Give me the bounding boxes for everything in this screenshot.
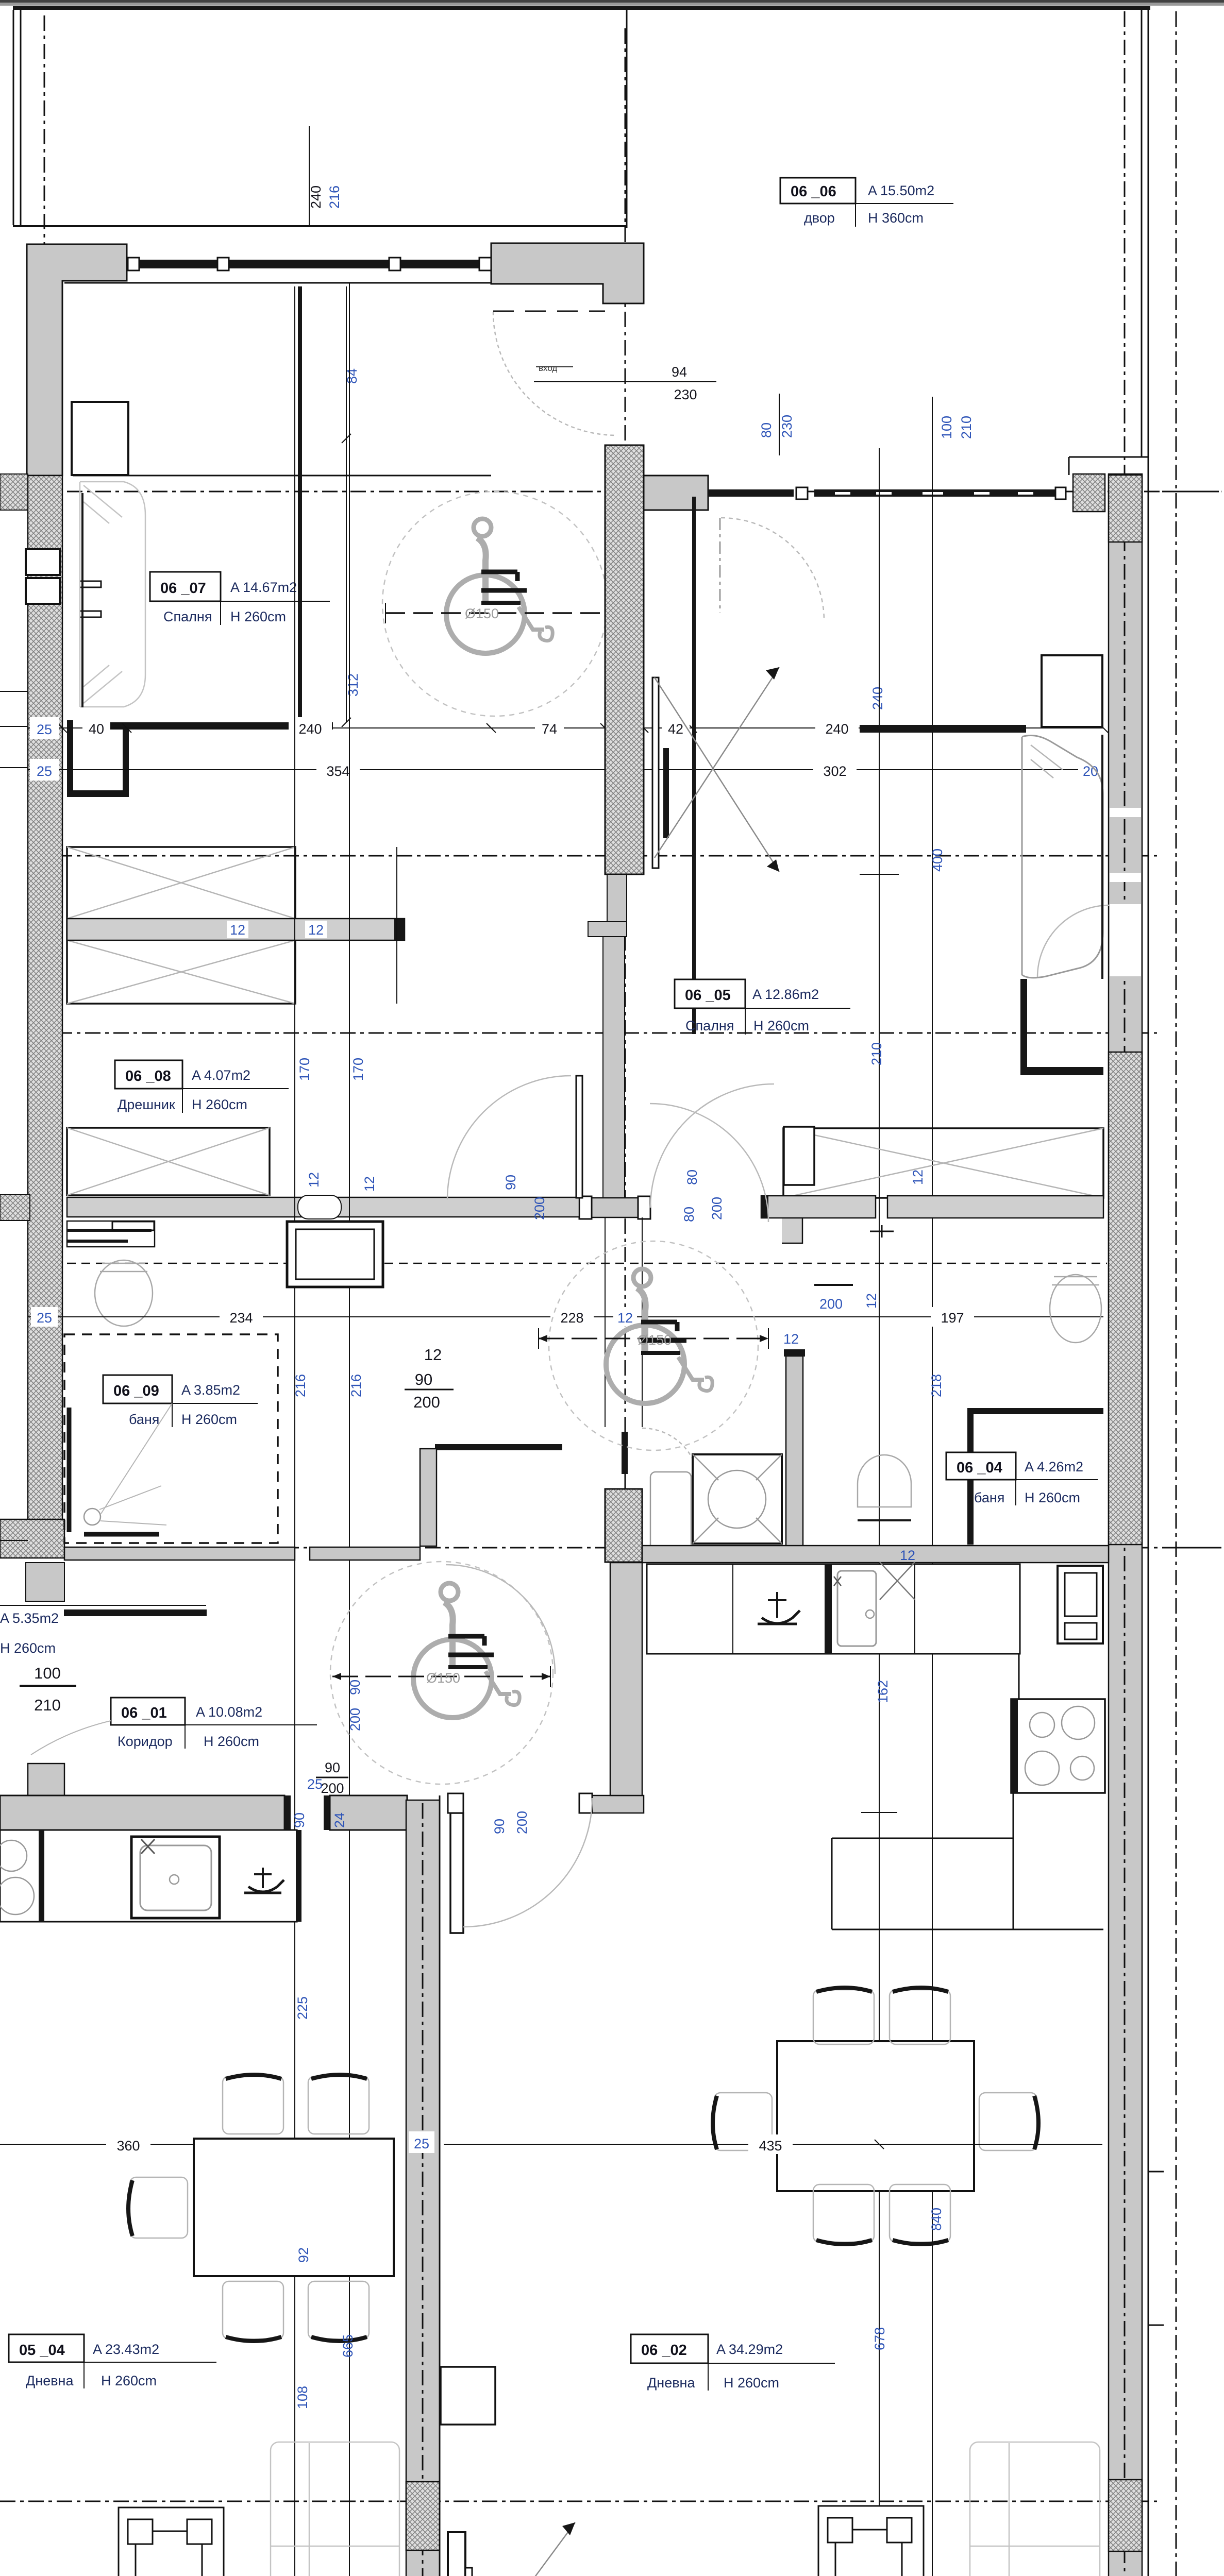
svg-text:42: 42 — [668, 721, 683, 737]
svg-text:12: 12 — [783, 1331, 799, 1347]
svg-text:200: 200 — [514, 1811, 530, 1834]
svg-text:92: 92 — [296, 2247, 311, 2263]
svg-text:240: 240 — [825, 721, 848, 737]
svg-text:170: 170 — [350, 1058, 366, 1081]
svg-text:H 260cm: H 260cm — [204, 1734, 259, 1749]
svg-text:Ø150: Ø150 — [426, 1670, 460, 1686]
svg-text:90: 90 — [415, 1370, 432, 1388]
svg-text:H 360cm: H 360cm — [868, 210, 924, 226]
svg-text:197: 197 — [941, 1310, 964, 1326]
svg-text:A 23.43m2: A 23.43m2 — [93, 2342, 159, 2357]
svg-text:12: 12 — [362, 1176, 377, 1192]
svg-text:A 14.67m2: A 14.67m2 — [230, 580, 297, 595]
svg-text:240: 240 — [870, 687, 885, 710]
svg-text:A 5.35m2: A 5.35m2 — [0, 1611, 59, 1626]
svg-text:234: 234 — [229, 1310, 253, 1326]
svg-text:A 15.50m2: A 15.50m2 — [868, 183, 934, 198]
svg-text:A 10.08m2: A 10.08m2 — [196, 1704, 262, 1720]
svg-text:H 260cm: H 260cm — [181, 1412, 237, 1427]
svg-text:90: 90 — [292, 1812, 307, 1828]
svg-text:216: 216 — [327, 185, 342, 209]
svg-text:Дневна: Дневна — [647, 2375, 695, 2391]
svg-text:360: 360 — [116, 2138, 140, 2154]
svg-text:06 _09: 06 _09 — [113, 1383, 159, 1399]
svg-text:12: 12 — [306, 1172, 322, 1188]
svg-text:200: 200 — [532, 1197, 547, 1220]
svg-text:A 34.29m2: A 34.29m2 — [716, 2342, 783, 2357]
svg-text:12: 12 — [617, 1310, 633, 1326]
svg-text:230: 230 — [779, 415, 795, 438]
svg-text:Дневна: Дневна — [26, 2373, 74, 2388]
svg-text:A 4.26m2: A 4.26m2 — [1025, 1459, 1083, 1475]
svg-text:210: 210 — [959, 416, 974, 439]
svg-text:216: 216 — [293, 1374, 308, 1397]
svg-text:A 3.85m2: A 3.85m2 — [181, 1382, 240, 1398]
svg-text:210: 210 — [34, 1696, 61, 1714]
svg-text:H 260cm: H 260cm — [101, 2373, 157, 2388]
svg-text:678: 678 — [872, 2327, 887, 2350]
svg-text:80: 80 — [681, 1207, 697, 1222]
svg-text:230: 230 — [674, 387, 697, 402]
svg-text:312: 312 — [345, 673, 361, 697]
svg-text:25: 25 — [37, 1310, 52, 1326]
svg-text:90: 90 — [492, 1819, 507, 1834]
svg-text:06 _01: 06 _01 — [121, 1705, 167, 1721]
svg-text:25: 25 — [37, 722, 52, 737]
svg-text:218: 218 — [929, 1374, 944, 1397]
svg-text:A 12.86m2: A 12.86m2 — [752, 987, 819, 1002]
svg-text:Коридор: Коридор — [118, 1734, 173, 1749]
svg-text:100: 100 — [34, 1664, 61, 1682]
svg-text:225: 225 — [295, 1996, 310, 2020]
svg-text:90: 90 — [347, 1680, 363, 1695]
svg-text:06 _07: 06 _07 — [160, 580, 206, 597]
svg-text:170: 170 — [297, 1058, 312, 1081]
svg-text:240: 240 — [308, 185, 324, 209]
svg-text:354: 354 — [326, 764, 349, 779]
svg-text:двор: двор — [804, 210, 835, 226]
svg-text:H 260cm: H 260cm — [192, 1097, 247, 1112]
svg-text:665: 665 — [340, 2334, 356, 2358]
svg-text:200: 200 — [321, 1781, 344, 1796]
svg-text:баня: баня — [974, 1490, 1004, 1505]
svg-text:Дрешник: Дрешник — [118, 1097, 175, 1112]
svg-text:228: 228 — [560, 1310, 583, 1326]
svg-text:12: 12 — [424, 1346, 442, 1364]
svg-text:435: 435 — [759, 2138, 782, 2154]
svg-text:302: 302 — [823, 764, 846, 779]
svg-text:840: 840 — [929, 2208, 944, 2231]
svg-text:06 _08: 06 _08 — [125, 1068, 171, 1084]
svg-text:240: 240 — [298, 721, 322, 737]
svg-text:80: 80 — [759, 422, 774, 438]
svg-text:200: 200 — [347, 1708, 363, 1731]
svg-text:06 _04: 06 _04 — [957, 1460, 1002, 1476]
svg-text:Спалня: Спалня — [685, 1018, 734, 1033]
svg-text:06 _06: 06 _06 — [791, 183, 836, 200]
svg-text:A 4.07m2: A 4.07m2 — [192, 1067, 250, 1083]
svg-text:06 _02: 06 _02 — [641, 2342, 687, 2359]
svg-text:80: 80 — [684, 1170, 700, 1185]
svg-text:25: 25 — [37, 764, 52, 779]
svg-text:200: 200 — [709, 1197, 725, 1220]
svg-text:94: 94 — [672, 364, 687, 380]
svg-text:400: 400 — [930, 849, 945, 872]
svg-text:Спалня: Спалня — [163, 609, 212, 624]
svg-text:H 260cm: H 260cm — [230, 609, 286, 624]
svg-text:74: 74 — [542, 721, 557, 737]
svg-text:12: 12 — [230, 922, 245, 938]
svg-text:108: 108 — [295, 2386, 310, 2409]
svg-text:H 260cm: H 260cm — [1025, 1490, 1080, 1505]
svg-text:90: 90 — [325, 1760, 340, 1775]
svg-text:05 _04: 05 _04 — [19, 2342, 65, 2359]
svg-text:12: 12 — [910, 1170, 926, 1185]
svg-text:баня: баня — [129, 1412, 159, 1427]
svg-text:24: 24 — [332, 1812, 347, 1828]
svg-text:200: 200 — [819, 1296, 843, 1312]
svg-text:162: 162 — [875, 1680, 891, 1703]
svg-text:вход: вход — [539, 363, 557, 373]
svg-text:06 _05: 06 _05 — [685, 987, 731, 1004]
svg-text:216: 216 — [348, 1374, 364, 1397]
svg-text:25: 25 — [414, 2136, 429, 2151]
svg-text:12: 12 — [864, 1293, 879, 1309]
svg-text:200: 200 — [413, 1393, 440, 1411]
svg-text:Ø150: Ø150 — [465, 606, 499, 621]
svg-text:Ø150: Ø150 — [638, 1332, 672, 1348]
svg-text:12: 12 — [308, 922, 324, 938]
svg-text:12: 12 — [900, 1548, 915, 1563]
svg-text:100: 100 — [939, 416, 954, 439]
svg-text:H 260cm: H 260cm — [0, 1640, 56, 1656]
svg-text:210: 210 — [869, 1042, 884, 1065]
svg-text:90: 90 — [503, 1175, 518, 1190]
svg-text:H 260cm: H 260cm — [753, 1018, 809, 1033]
svg-text:40: 40 — [89, 721, 104, 737]
svg-text:H 260cm: H 260cm — [724, 2375, 779, 2391]
